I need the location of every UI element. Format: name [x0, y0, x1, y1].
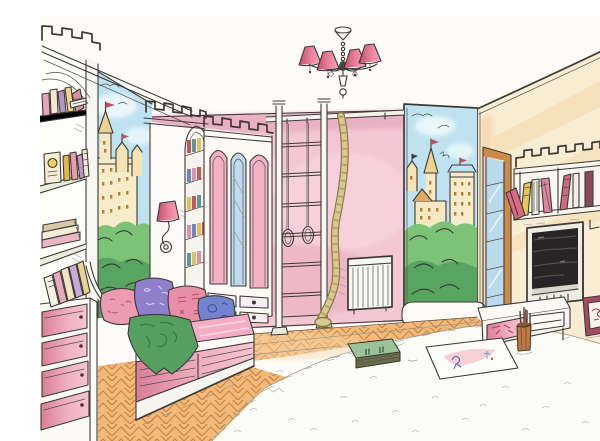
wardrobe-panel-blue	[231, 153, 246, 286]
room-sketch	[40, 16, 600, 441]
chest-of-drawers	[40, 261, 97, 441]
tv-niche	[527, 222, 583, 306]
castle-mural-right	[404, 104, 477, 319]
wardrobe-panel-pink-1	[210, 151, 227, 285]
